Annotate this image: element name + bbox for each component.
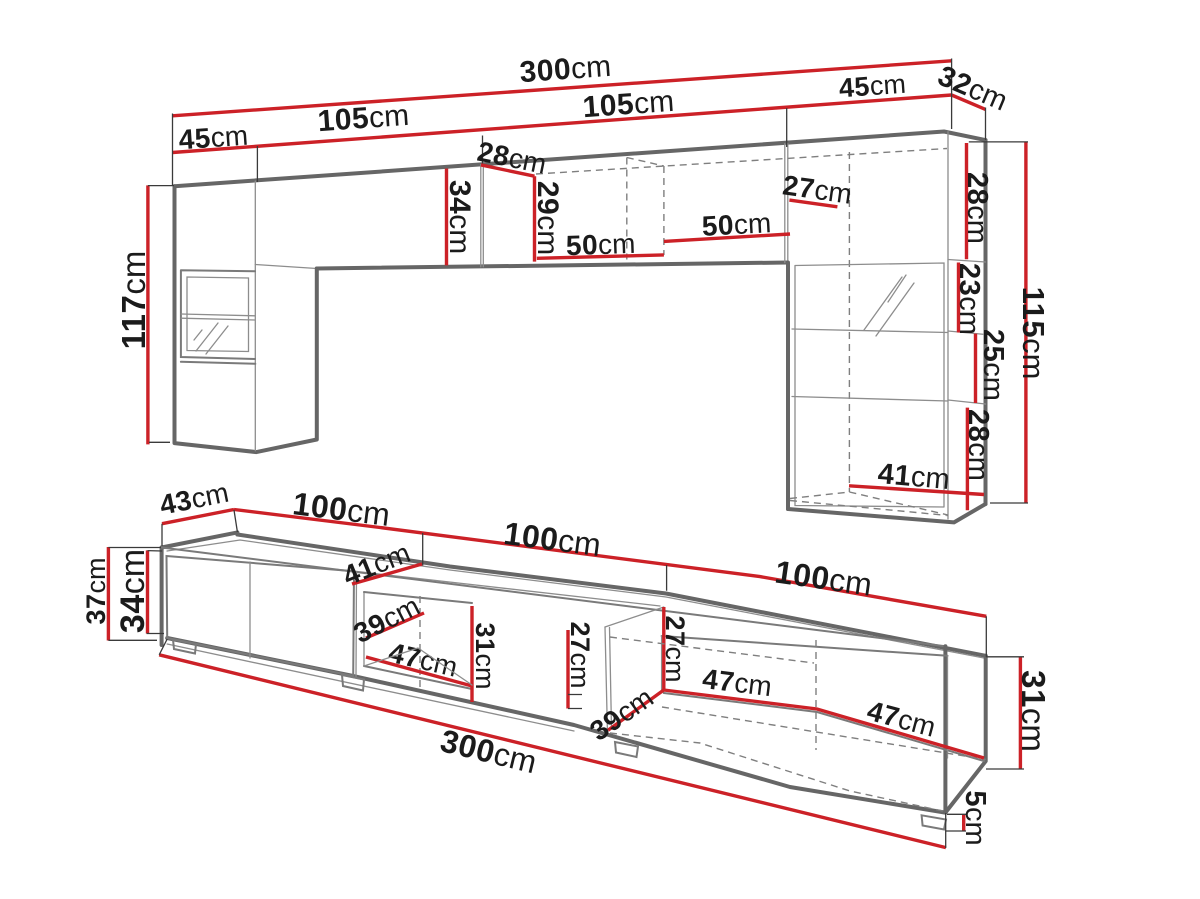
svg-text:29cm: 29cm (531, 181, 564, 255)
svg-text:32cm: 32cm (933, 60, 1012, 118)
svg-text:100cm: 100cm (502, 515, 603, 563)
svg-text:41cm: 41cm (338, 537, 414, 592)
svg-text:5cm: 5cm (959, 790, 991, 845)
svg-text:45cm: 45cm (178, 120, 249, 156)
svg-text:28cm: 28cm (961, 172, 993, 244)
svg-text:105cm: 105cm (582, 85, 676, 124)
svg-text:23cm: 23cm (953, 263, 985, 335)
svg-text:39cm: 39cm (349, 590, 425, 649)
svg-text:27cm: 27cm (565, 621, 595, 688)
svg-text:50cm: 50cm (701, 207, 772, 242)
svg-text:34cm: 34cm (443, 180, 476, 254)
svg-text:300cm: 300cm (437, 722, 540, 780)
svg-text:47cm: 47cm (864, 695, 939, 743)
svg-text:37cm: 37cm (81, 557, 111, 624)
svg-text:47cm: 47cm (386, 637, 461, 683)
svg-text:100cm: 100cm (291, 485, 392, 533)
svg-text:300cm: 300cm (519, 50, 613, 89)
svg-text:27cm: 27cm (781, 169, 854, 209)
svg-text:115cm: 115cm (1016, 287, 1051, 380)
svg-text:34cm: 34cm (114, 549, 152, 633)
svg-text:117cm: 117cm (115, 251, 152, 350)
svg-text:105cm: 105cm (317, 99, 411, 138)
svg-text:25cm: 25cm (977, 329, 1009, 401)
svg-text:27cm: 27cm (660, 615, 690, 682)
svg-text:50cm: 50cm (565, 228, 636, 261)
svg-text:31cm: 31cm (470, 622, 500, 689)
svg-text:41cm: 41cm (877, 458, 951, 496)
svg-text:31cm: 31cm (1015, 670, 1052, 752)
svg-text:100cm: 100cm (773, 553, 875, 602)
svg-text:28cm: 28cm (475, 136, 549, 180)
svg-text:43cm: 43cm (157, 477, 231, 521)
svg-text:45cm: 45cm (838, 69, 907, 104)
svg-text:28cm: 28cm (962, 409, 994, 481)
